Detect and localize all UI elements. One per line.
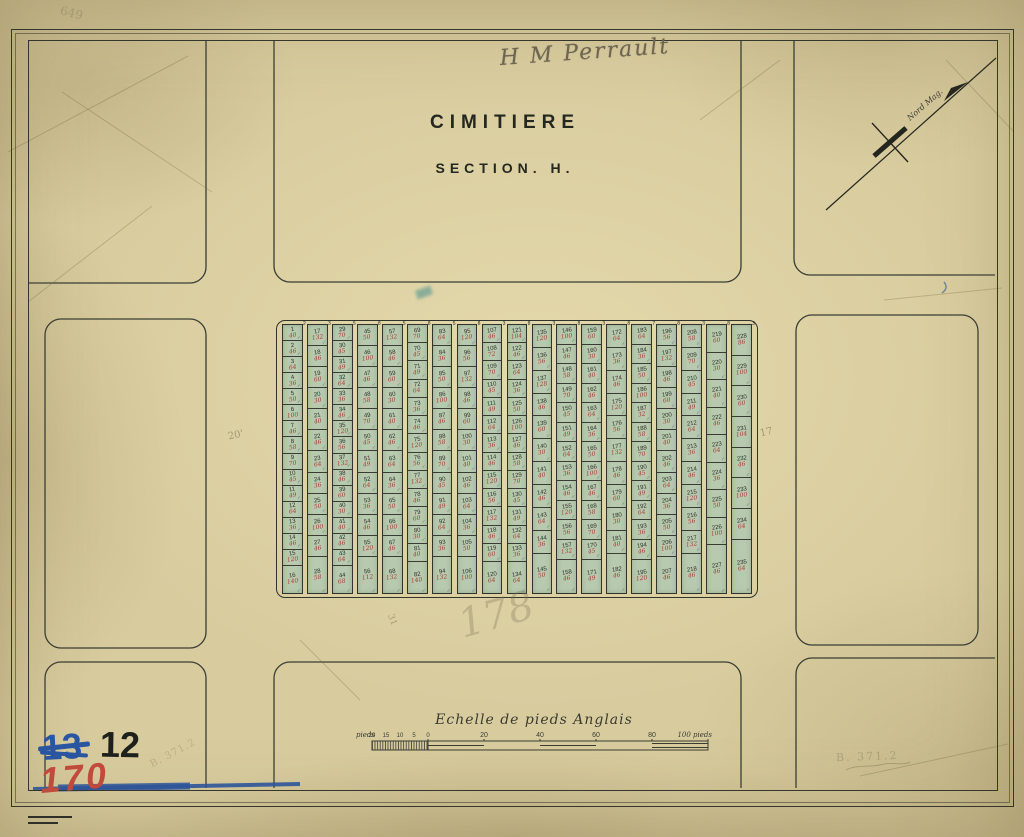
plot-value: 56: [463, 356, 471, 363]
check-mark: ✓: [422, 411, 426, 416]
plot-value: 60: [737, 401, 745, 408]
check-mark: ✓: [497, 538, 501, 543]
plot-cell: 9846✓: [458, 388, 477, 409]
plot-value: 58: [513, 461, 521, 468]
check-mark: ✓: [347, 336, 351, 341]
check-mark: ✓: [522, 520, 526, 525]
scale-unit-label: pieds: [356, 731, 375, 739]
plot-value: 58: [687, 335, 695, 342]
plot-value: 46: [413, 497, 421, 504]
check-mark: ✓: [596, 437, 600, 442]
plot-value: 50: [388, 503, 396, 510]
plot-cell: 11045✓: [483, 380, 502, 398]
check-mark: ✓: [497, 447, 501, 452]
plot-cell: 20858✓: [682, 325, 701, 348]
check-mark: ✓: [397, 488, 401, 493]
check-mark: ✓: [646, 417, 650, 422]
plot-value: 46: [613, 381, 621, 388]
check-mark: ✓: [547, 434, 551, 439]
check-mark: ✓: [422, 520, 426, 525]
check-mark: ✓: [646, 378, 650, 383]
plot-value: 64: [438, 334, 446, 341]
plot-cell: 11149: [483, 398, 502, 416]
plot-value: 36: [538, 541, 546, 548]
plot-cell: 229100✓: [732, 356, 751, 387]
plot-cell: 13045✓: [508, 489, 527, 507]
plot-value: 70: [637, 451, 645, 458]
check-mark: ✓: [696, 365, 700, 370]
plot-cell: 19149✓: [632, 481, 651, 501]
check-mark: ✓: [746, 588, 750, 593]
plot-value: 60: [463, 419, 471, 426]
plot-value: 50: [513, 406, 521, 413]
plot-value: 100: [386, 524, 398, 532]
check-mark: ✓: [571, 339, 575, 344]
plot-cell: 157132✓: [557, 540, 576, 560]
check-mark: ✓: [347, 432, 351, 437]
plot-cell: 18970: [632, 442, 651, 462]
plot-cell: 7149✓: [408, 361, 427, 379]
plot-value: 36: [613, 358, 621, 365]
check-mark: ✓: [571, 515, 575, 520]
plot-cell: 66100: [383, 515, 402, 536]
check-mark: ✓: [472, 530, 476, 535]
plot-cell: 17846✓: [607, 462, 626, 485]
plot-value: 45: [338, 348, 346, 355]
plot-cell: 137128✓: [533, 371, 552, 394]
plot-cell: 11336✓: [483, 434, 502, 452]
plot-cell: 5264✓: [358, 473, 377, 494]
plot-cell: 8746: [433, 409, 452, 430]
check-mark: ✓: [297, 496, 301, 501]
plot-cell: 146100✓: [557, 325, 576, 345]
plot-value: 64: [737, 566, 745, 573]
plot-cell: 10872: [483, 343, 502, 361]
plot-value: 46: [463, 482, 471, 489]
plot-cell: 15656: [557, 520, 576, 540]
plot-value: 70: [687, 358, 695, 365]
plot-cell: 21149✓: [682, 394, 701, 417]
plot-column: 8121104✓12246✓1236412436✓12550✓126100127…: [507, 324, 528, 594]
plot-value: 40: [338, 525, 346, 532]
check-mark: ✓: [721, 540, 725, 545]
check-mark: ✓: [522, 557, 526, 562]
plot-cell: 3149✓: [333, 357, 352, 373]
plot-value: 50: [313, 503, 321, 510]
plot-cell: 7336✓: [408, 398, 427, 416]
plot-value: 46: [662, 574, 670, 581]
plot-cell: 11656✓: [483, 489, 502, 507]
check-mark: ✓: [522, 465, 526, 470]
plot-value: 40: [662, 440, 670, 447]
column-width-mark: 3: [602, 321, 605, 327]
check-mark: ✓: [621, 480, 625, 485]
plot-cell: 364: [283, 357, 302, 373]
plot-cell: 10746✓: [483, 325, 502, 343]
column-width-mark: 8: [627, 321, 630, 327]
plot-cell: 2970✓: [333, 325, 352, 341]
plot-cell: 3846✓: [333, 470, 352, 486]
plot-cell: 18030: [607, 508, 626, 531]
plot-cell: 16746✓: [582, 481, 601, 501]
check-mark: ✓: [646, 476, 650, 481]
plot-cell: 8858✓: [433, 430, 452, 451]
plot-cell: 5336✓: [358, 494, 377, 515]
check-mark: ✓: [696, 480, 700, 485]
check-mark: ✓: [297, 336, 301, 341]
plot-cell: 197132✓: [657, 346, 676, 367]
plot-value: 60: [313, 377, 321, 384]
plot-cell: 20246✓: [657, 451, 676, 472]
plot-cell: 117132: [483, 507, 502, 525]
plot-value: 40: [413, 552, 421, 559]
check-mark: ✓: [472, 341, 476, 346]
plot-value: 132: [436, 574, 448, 582]
plot-cell: 95120✓: [458, 325, 477, 346]
plot-value: 49: [563, 431, 571, 438]
check-mark: ✓: [497, 338, 501, 343]
plot-value: 120: [536, 335, 548, 343]
plot-cell: 13336✓: [508, 544, 527, 562]
check-mark: ✓: [372, 509, 376, 514]
plot-cell: 14550✓: [533, 554, 552, 593]
check-mark: ✓: [347, 480, 351, 485]
plot-value: 100: [461, 574, 473, 582]
plot-cell: 1960✓: [308, 367, 327, 388]
plot-cell: 166100✓: [582, 462, 601, 482]
plot-value: 50: [588, 451, 596, 458]
plot-value: 45: [363, 440, 371, 447]
plot-cell: 14436: [533, 531, 552, 554]
check-mark: ✓: [621, 411, 625, 416]
check-mark: ✓: [422, 356, 426, 361]
plot-cell: 7045✓: [408, 343, 427, 361]
plot-cell: 11846✓: [483, 526, 502, 544]
plot-value: 56: [488, 497, 496, 504]
plot-value: 50: [288, 396, 296, 403]
column-width-mark: 7: [652, 321, 655, 327]
plot-value: 56: [538, 358, 546, 365]
plot-value: 70: [588, 529, 596, 536]
plot-cell: 126100: [508, 416, 527, 434]
stray-mark: [28, 822, 58, 824]
plot-cell: 217132✓: [682, 531, 701, 554]
plot-cell: 17045✓: [582, 540, 601, 560]
check-mark: ✓: [447, 530, 451, 535]
plot-value: 50: [662, 524, 670, 531]
tick-label: 20: [369, 733, 376, 739]
plot-value: 60: [538, 427, 546, 434]
plot-cell: 1336✓: [283, 518, 302, 534]
column-width-mark: 8: [528, 321, 531, 327]
plot-value: 56: [687, 518, 695, 525]
plot-cell: 13846: [533, 394, 552, 417]
plot-cell: 6246✓: [383, 430, 402, 451]
plot-column: 819656✓197132✓1984619960✓20030✓201402024…: [656, 324, 677, 594]
plot-cell: 14970✓: [557, 384, 576, 404]
plot-cell: 6364: [383, 451, 402, 472]
plot-value: 40: [313, 419, 321, 426]
check-mark: ✓: [621, 502, 625, 507]
plot-cell: 3336: [333, 389, 352, 405]
plot-value: 46: [363, 524, 371, 531]
plot-value: 46: [288, 541, 296, 548]
plot-value: 46: [313, 545, 321, 552]
check-mark: ✓: [322, 404, 326, 409]
plot-cell: 4858: [358, 388, 377, 409]
plot-cell: 5149: [358, 451, 377, 472]
plot-value: 30: [463, 440, 471, 447]
plot-cell: 15264✓: [557, 442, 576, 462]
plot-cell: 17656✓: [607, 416, 626, 439]
plot-cell: 10436✓: [458, 515, 477, 536]
plot-cell: 115120✓: [483, 471, 502, 489]
plot-value: 100: [636, 392, 648, 400]
plot-value: 120: [411, 442, 423, 450]
plot-cell: 11264✓: [483, 416, 502, 434]
check-mark: ✓: [746, 473, 750, 478]
plot-value: 64: [463, 503, 471, 510]
plot-value: 36: [388, 482, 396, 489]
plot-cell: 5960✓: [383, 367, 402, 388]
tick-label: 5: [412, 733, 416, 739]
plot-value: 36: [513, 552, 521, 559]
check-mark: ✓: [422, 484, 426, 489]
plot-value: 46: [338, 412, 346, 419]
plot-value: 72: [488, 351, 496, 358]
plot-cell: 246✓: [283, 341, 302, 357]
check-mark: ✓: [347, 560, 351, 565]
plot-cell: 16030✓: [582, 345, 601, 365]
plot-value: 60: [388, 377, 396, 384]
check-mark: ✓: [547, 457, 551, 462]
plot-cell: 2364✓: [308, 451, 327, 472]
check-mark: ✓: [397, 509, 401, 514]
plot-column: 8146100✓1474614858✓14970✓1504515149✓1526…: [556, 324, 577, 594]
plot-cell: 18858✓: [632, 423, 651, 443]
plot-column: 2140✓246✓364436✓550✓6100746✓858✓9701045✓…: [282, 324, 303, 594]
plot-value: 36: [563, 471, 571, 478]
plot-cell: 19656✓: [657, 325, 676, 346]
check-mark: ✓: [422, 538, 426, 543]
scanned-cemetery-plan: { "title": { "line1": "CIMITIERE", "line…: [0, 0, 1024, 837]
check-mark: ✓: [447, 446, 451, 451]
plot-value: 30: [712, 365, 720, 372]
plot-cell: 15846✓: [557, 560, 576, 593]
check-mark: ✓: [297, 544, 301, 549]
check-mark: ✓: [646, 437, 650, 442]
plot-value: 60: [662, 398, 670, 405]
plot-column: 8455046100✓4746✓48584970✓5045✓51495264✓5…: [357, 324, 378, 594]
plot-cell: 155120✓: [557, 501, 576, 521]
plot-cell: 57132: [383, 325, 402, 346]
plot-cell: 19960✓: [657, 388, 676, 409]
plot-value: 40: [288, 332, 296, 339]
plot-value: 70: [438, 461, 446, 468]
plot-cell: 6746✓: [383, 536, 402, 557]
plot-value: 46: [313, 440, 321, 447]
check-mark: ✓: [596, 495, 600, 500]
plot-cell: 231104: [732, 417, 751, 448]
plot-cell: 35120✓: [333, 421, 352, 437]
plot-value: 60: [338, 493, 346, 500]
plot-value: 64: [488, 577, 496, 584]
check-mark: ✓: [596, 417, 600, 422]
plot-cell: 15045: [557, 403, 576, 423]
plot-value: 36: [712, 475, 720, 482]
plot-value: 49: [363, 461, 371, 468]
plot-cell: 7656✓: [408, 453, 427, 471]
plot-cell: 14140: [533, 462, 552, 485]
check-mark: ✓: [746, 503, 750, 508]
check-mark: ✓: [646, 495, 650, 500]
check-mark: ✓: [422, 465, 426, 470]
plot-value: 56: [662, 334, 670, 341]
column-width-mark: 3: [553, 321, 556, 327]
plot-value: 58: [288, 444, 296, 451]
check-mark: ✓: [721, 589, 725, 594]
check-mark: ✓: [322, 530, 326, 535]
plot-value: 50: [463, 545, 471, 552]
plot-value: 64: [288, 509, 296, 516]
plot-cell: 16364✓: [582, 403, 601, 423]
check-mark: ✓: [497, 374, 501, 379]
plot-value: 46: [313, 356, 321, 363]
check-mark: ✓: [397, 425, 401, 430]
plot-cell: 2246✓: [308, 430, 327, 451]
plot-value: 36: [687, 450, 695, 457]
check-mark: ✓: [621, 588, 625, 593]
plot-value: 58: [637, 431, 645, 438]
plot-cell: 15336: [557, 462, 576, 482]
plot-cell: 8030✓: [408, 526, 427, 544]
plot-value: 30: [388, 398, 396, 405]
check-mark: ✓: [472, 404, 476, 409]
plot-cell: 5846✓: [383, 346, 402, 367]
plot-cell: 20746: [657, 557, 676, 593]
check-mark: ✓: [372, 383, 376, 388]
plot-value: 46: [613, 473, 621, 480]
plot-value: 64: [737, 523, 745, 530]
check-mark: ✓: [322, 467, 326, 472]
plot-value: 120: [636, 575, 648, 583]
plot-cell: 4030✓: [333, 502, 352, 518]
plot-value: 70: [413, 333, 421, 340]
plot-value: 64: [637, 510, 645, 517]
plot-cell: 1446✓: [283, 534, 302, 550]
plot-cell: 2030✓: [308, 388, 327, 409]
plot-cell: 5045✓: [358, 430, 377, 451]
plot-value: 56: [413, 461, 421, 468]
plot-value: 64: [637, 334, 645, 341]
plot-cell: 10140✓: [458, 451, 477, 472]
check-mark: ✓: [347, 589, 351, 594]
plot-cell: 13656✓: [533, 348, 552, 371]
plot-cell: 106100✓: [458, 557, 477, 593]
plot-cell: 195120: [632, 560, 651, 593]
plot-cell: 26100✓: [308, 515, 327, 536]
plot-cell: 3264✓: [333, 373, 352, 389]
plot-value: 140: [411, 577, 423, 585]
plot-value: 46: [613, 573, 621, 580]
pencil-number-top-left: 649: [59, 3, 85, 22]
check-mark: ✓: [621, 548, 625, 553]
crossed-out-red-number: 170: [38, 754, 110, 802]
column-width-mark: 5: [453, 321, 456, 327]
plot-value: 30: [413, 534, 421, 541]
plot-value: 36: [488, 442, 496, 449]
check-mark: ✓: [621, 342, 625, 347]
reference-code-bottom-right: B. 371.2: [836, 749, 899, 764]
plot-cell: 14858✓: [557, 364, 576, 384]
plot-value: 58: [363, 398, 371, 405]
check-mark: ✓: [646, 359, 650, 364]
plot-cell: 22746✓: [707, 545, 726, 593]
plot-cell: 14364✓: [533, 508, 552, 531]
check-mark: ✓: [447, 404, 451, 409]
plot-value: 30: [662, 419, 670, 426]
plot-value: 46: [712, 420, 720, 427]
plot-value: 46: [687, 473, 695, 480]
plot-cell: 9149✓: [433, 494, 452, 515]
plot-value: 132: [611, 449, 623, 457]
plot-value: 46: [338, 541, 346, 548]
check-mark: ✓: [671, 425, 675, 430]
plot-value: 50: [363, 334, 371, 341]
check-mark: ✓: [571, 495, 575, 500]
check-mark: ✓: [696, 502, 700, 507]
plot-value: 40: [388, 419, 396, 426]
plot-value: 70: [563, 392, 571, 399]
plot-value: 56: [563, 529, 571, 536]
plot-value: 64: [313, 461, 321, 468]
check-mark: ✓: [522, 338, 526, 343]
plot-cell: 56112✓: [358, 557, 377, 593]
check-mark: ✓: [447, 383, 451, 388]
plot-cell: 3656: [333, 437, 352, 453]
plot-cell: 17132✓: [308, 325, 327, 346]
plot-value: 60: [488, 552, 496, 559]
check-mark: ✓: [497, 392, 501, 397]
plot-cell: 22886: [732, 325, 751, 356]
check-mark: ✓: [297, 432, 301, 437]
plot-cell: 226100✓: [707, 518, 726, 546]
plot-cell: 550✓: [283, 389, 302, 405]
check-mark: ✓: [472, 589, 476, 594]
check-mark: ✓: [671, 467, 675, 472]
column-width-mark: 8: [677, 321, 680, 327]
check-mark: ✓: [347, 464, 351, 469]
plot-cell: 2746: [308, 536, 327, 557]
plot-value: 46: [363, 377, 371, 384]
plot-value: 64: [413, 388, 421, 395]
check-mark: ✓: [472, 467, 476, 472]
plot-cell: 1846: [308, 346, 327, 367]
tick-label: 20: [480, 732, 488, 739]
plot-cell: 6100: [283, 405, 302, 421]
plot-value: 36: [463, 524, 471, 531]
plot-value: 49: [687, 404, 695, 411]
check-mark: ✓: [522, 447, 526, 452]
plot-column: 869707045✓7149✓72647336✓7446✓751207656✓7…: [407, 324, 428, 594]
plot-value: 46: [637, 549, 645, 556]
plot-column: 317132✓18461960✓2030✓21402246✓2364✓24362…: [307, 324, 328, 594]
plot-cell: 12064: [483, 562, 502, 593]
plot-value: 30: [588, 353, 596, 360]
plot-cell: 9045: [433, 473, 452, 494]
plot-cell: 175120✓: [607, 394, 626, 417]
plot-cell: 21846✓: [682, 554, 701, 593]
